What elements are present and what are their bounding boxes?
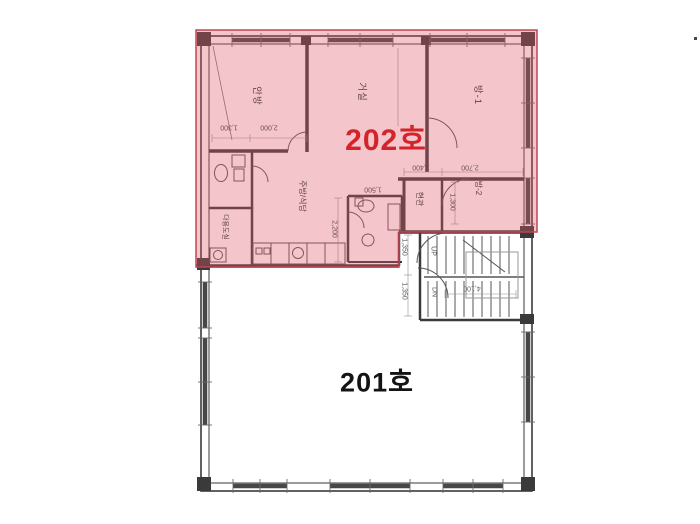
room-label-living-room: 거실: [356, 82, 366, 101]
room-label-room2: 방-2: [474, 181, 482, 195]
room-label-room1: 방-1: [472, 85, 482, 105]
room-label-kitchen-dining: 주방/식당: [298, 180, 306, 212]
dim-1350-b: 1,350: [401, 282, 408, 300]
stairs-up-label: UP: [430, 246, 437, 256]
dim-1300-b: 1,300: [449, 193, 456, 211]
room-label-master-bedroom: 안방: [251, 86, 261, 105]
dim-2000: 2,000: [260, 124, 278, 131]
dim-1400: 1,400: [412, 164, 430, 171]
floor-plan-drawing: [0, 0, 700, 524]
dim-1500: 1,500: [364, 186, 382, 193]
unit-201-label[interactable]: 201호: [340, 370, 414, 397]
artifact-speck: [694, 37, 697, 40]
room-label-entrance: 현관: [415, 192, 423, 207]
dim-1300-a: 1,300: [220, 124, 238, 131]
unit-202-label[interactable]: 202호: [345, 126, 427, 156]
dim-2700: 2,700: [461, 164, 479, 171]
room-label-utility: 다용도실: [222, 214, 229, 240]
dim-2200: 2,200: [331, 220, 338, 238]
dim-1350-a: 1,350: [401, 238, 408, 256]
dim-4100: 4,100: [463, 285, 481, 292]
stairs-dn-label: DN: [431, 287, 438, 297]
floor-plan-page: 202호 201호 안방 거실 방-1 방-2 현관 주방/식당 다용도실 1,…: [0, 0, 700, 524]
